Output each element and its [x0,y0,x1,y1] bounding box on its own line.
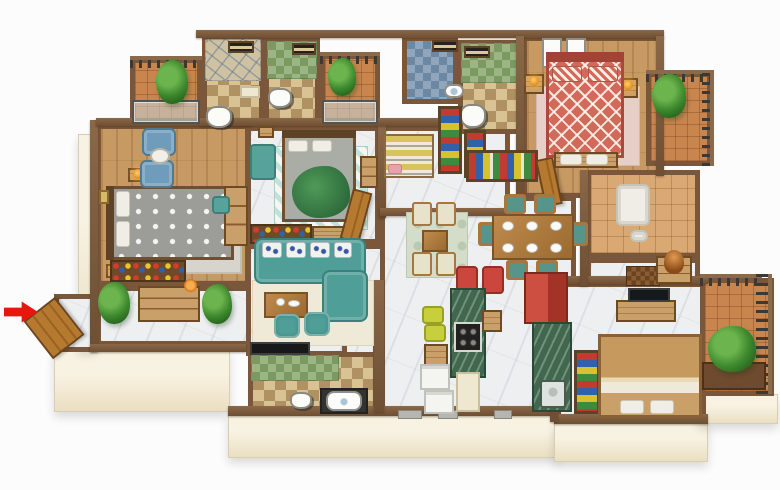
bathroom-3-tile-wall [251,355,339,381]
plinth-front-center [228,414,560,458]
plinth-balcony-right [698,394,778,424]
bathroom-2-toilet [268,88,292,108]
bedroom-3-green-throw [292,166,350,218]
mat-niche [626,266,660,286]
bedroom-3-headboard [282,130,356,138]
cafe-table [422,230,448,252]
foyer-plant-right [202,284,232,324]
living-tv [250,342,310,355]
study-lounge-chair [616,184,650,226]
balcony-4-railing-top [700,274,762,286]
bathroom-blue-basin [444,84,464,98]
kitchen-stool [424,344,448,366]
door-step-1 [398,410,422,419]
cafe-chair-4 [436,252,456,276]
master-lamp-1 [529,76,539,86]
foyer-deco-plate [184,279,197,292]
balcony-3-plant [652,74,686,118]
sofa-pillow-3 [310,242,330,258]
dining-plate-6 [550,243,562,253]
bedroom-3-nightstand [258,126,274,138]
statue-bronze [664,250,684,274]
sofa-pillow-4 [334,242,352,258]
foyer-plant-left [98,282,130,324]
pouf-1 [274,314,300,338]
bedroom-4-pillow-2 [650,400,674,414]
kitchen-chair-yellow-1 [422,306,444,324]
refrigerator-red [524,272,568,324]
coffee-cup [276,298,285,306]
bathroom-1-vent [228,41,254,53]
bedroom-3-armchair [250,144,276,180]
kitchen-sink [540,380,566,408]
cafe-chair-2 [436,202,456,226]
bathroom-1-ledge [240,86,260,98]
balcony-2-plant [328,58,356,96]
bathroom-3-basin [326,391,362,411]
master-lamp-2 [623,80,633,90]
wall-living-kitchen [374,280,384,412]
dining-plate-1 [502,221,514,231]
washing-machine [420,364,450,390]
bedroom-2-wall-art [99,190,109,204]
pouf-2 [304,312,330,336]
bedroom-4-wardrobe [574,350,600,414]
bedroom-3-pillow-2 [312,140,332,152]
dining-plate-2 [526,221,538,231]
bathroom-3-toilet [290,392,312,409]
bedroom-2-desk-chair [212,196,230,214]
balcony-3-railing-right [702,70,714,166]
kids-pillow [388,164,402,174]
bedroom-4-tv [628,288,670,302]
plinth-front-right [554,422,708,462]
sofa-pillow-2 [286,242,306,258]
dining-plate-3 [550,221,562,231]
outer-wall-top [196,30,664,38]
closet-clothes-1 [438,106,462,174]
sofa-pillow-1 [262,242,282,258]
floorplan-scene [0,0,780,490]
cafe-chair-3 [412,252,432,276]
closet-clothes-3 [466,150,538,182]
study-footstool [630,230,648,242]
armchair-blue-2 [140,160,174,188]
door-step-3 [494,410,512,419]
balcony-1-plant [156,60,188,104]
cafe-chair-1 [412,202,432,226]
coffee-tray [288,300,300,307]
dining-chair-1 [504,194,526,214]
plinth-entry-left [54,350,230,412]
bench-cushion-2 [586,154,608,165]
bedroom-4-tv-console [616,300,676,322]
bathroom-green-toilet [460,104,486,128]
outer-wall-left [90,120,98,352]
bench-cushion-1 [560,154,582,165]
bathroom-blue-vent [432,40,458,52]
bathroom-2-vent [292,43,316,55]
balcony-1-glass-door [132,100,200,124]
kitchen-cabinet [482,310,502,332]
master-pillow-1 [552,66,582,82]
bedroom-3-pillow-1 [288,140,308,152]
bathroom-1-toilet [206,106,232,128]
sofa-chaise [322,270,368,322]
dining-plate-5 [526,243,538,253]
bedroom-2-pillow-1 [116,191,130,217]
kitchen-open-cabinet [456,372,480,412]
side-table-round [150,148,170,164]
balcony-4-plant [708,326,756,372]
dining-chair-2 [534,194,556,214]
wall-foyer-bottom [90,344,246,352]
shoe-rack-colorful-1 [110,260,186,282]
balcony-2-glass-door [322,100,378,124]
kitchen-stove [454,322,482,352]
master-headboard [546,52,624,62]
dining-plate-4 [502,243,514,253]
bedroom-3-dresser [360,156,378,188]
dishwasher [424,390,454,414]
bedroom-2-desk [224,186,248,246]
bedroom-2-pillow-2 [116,221,130,247]
kitchen-chair-yellow-2 [424,324,446,342]
bathroom-green-vent [464,46,490,58]
master-pillow-2 [588,66,618,82]
bedroom-4-pillow-1 [620,400,644,414]
